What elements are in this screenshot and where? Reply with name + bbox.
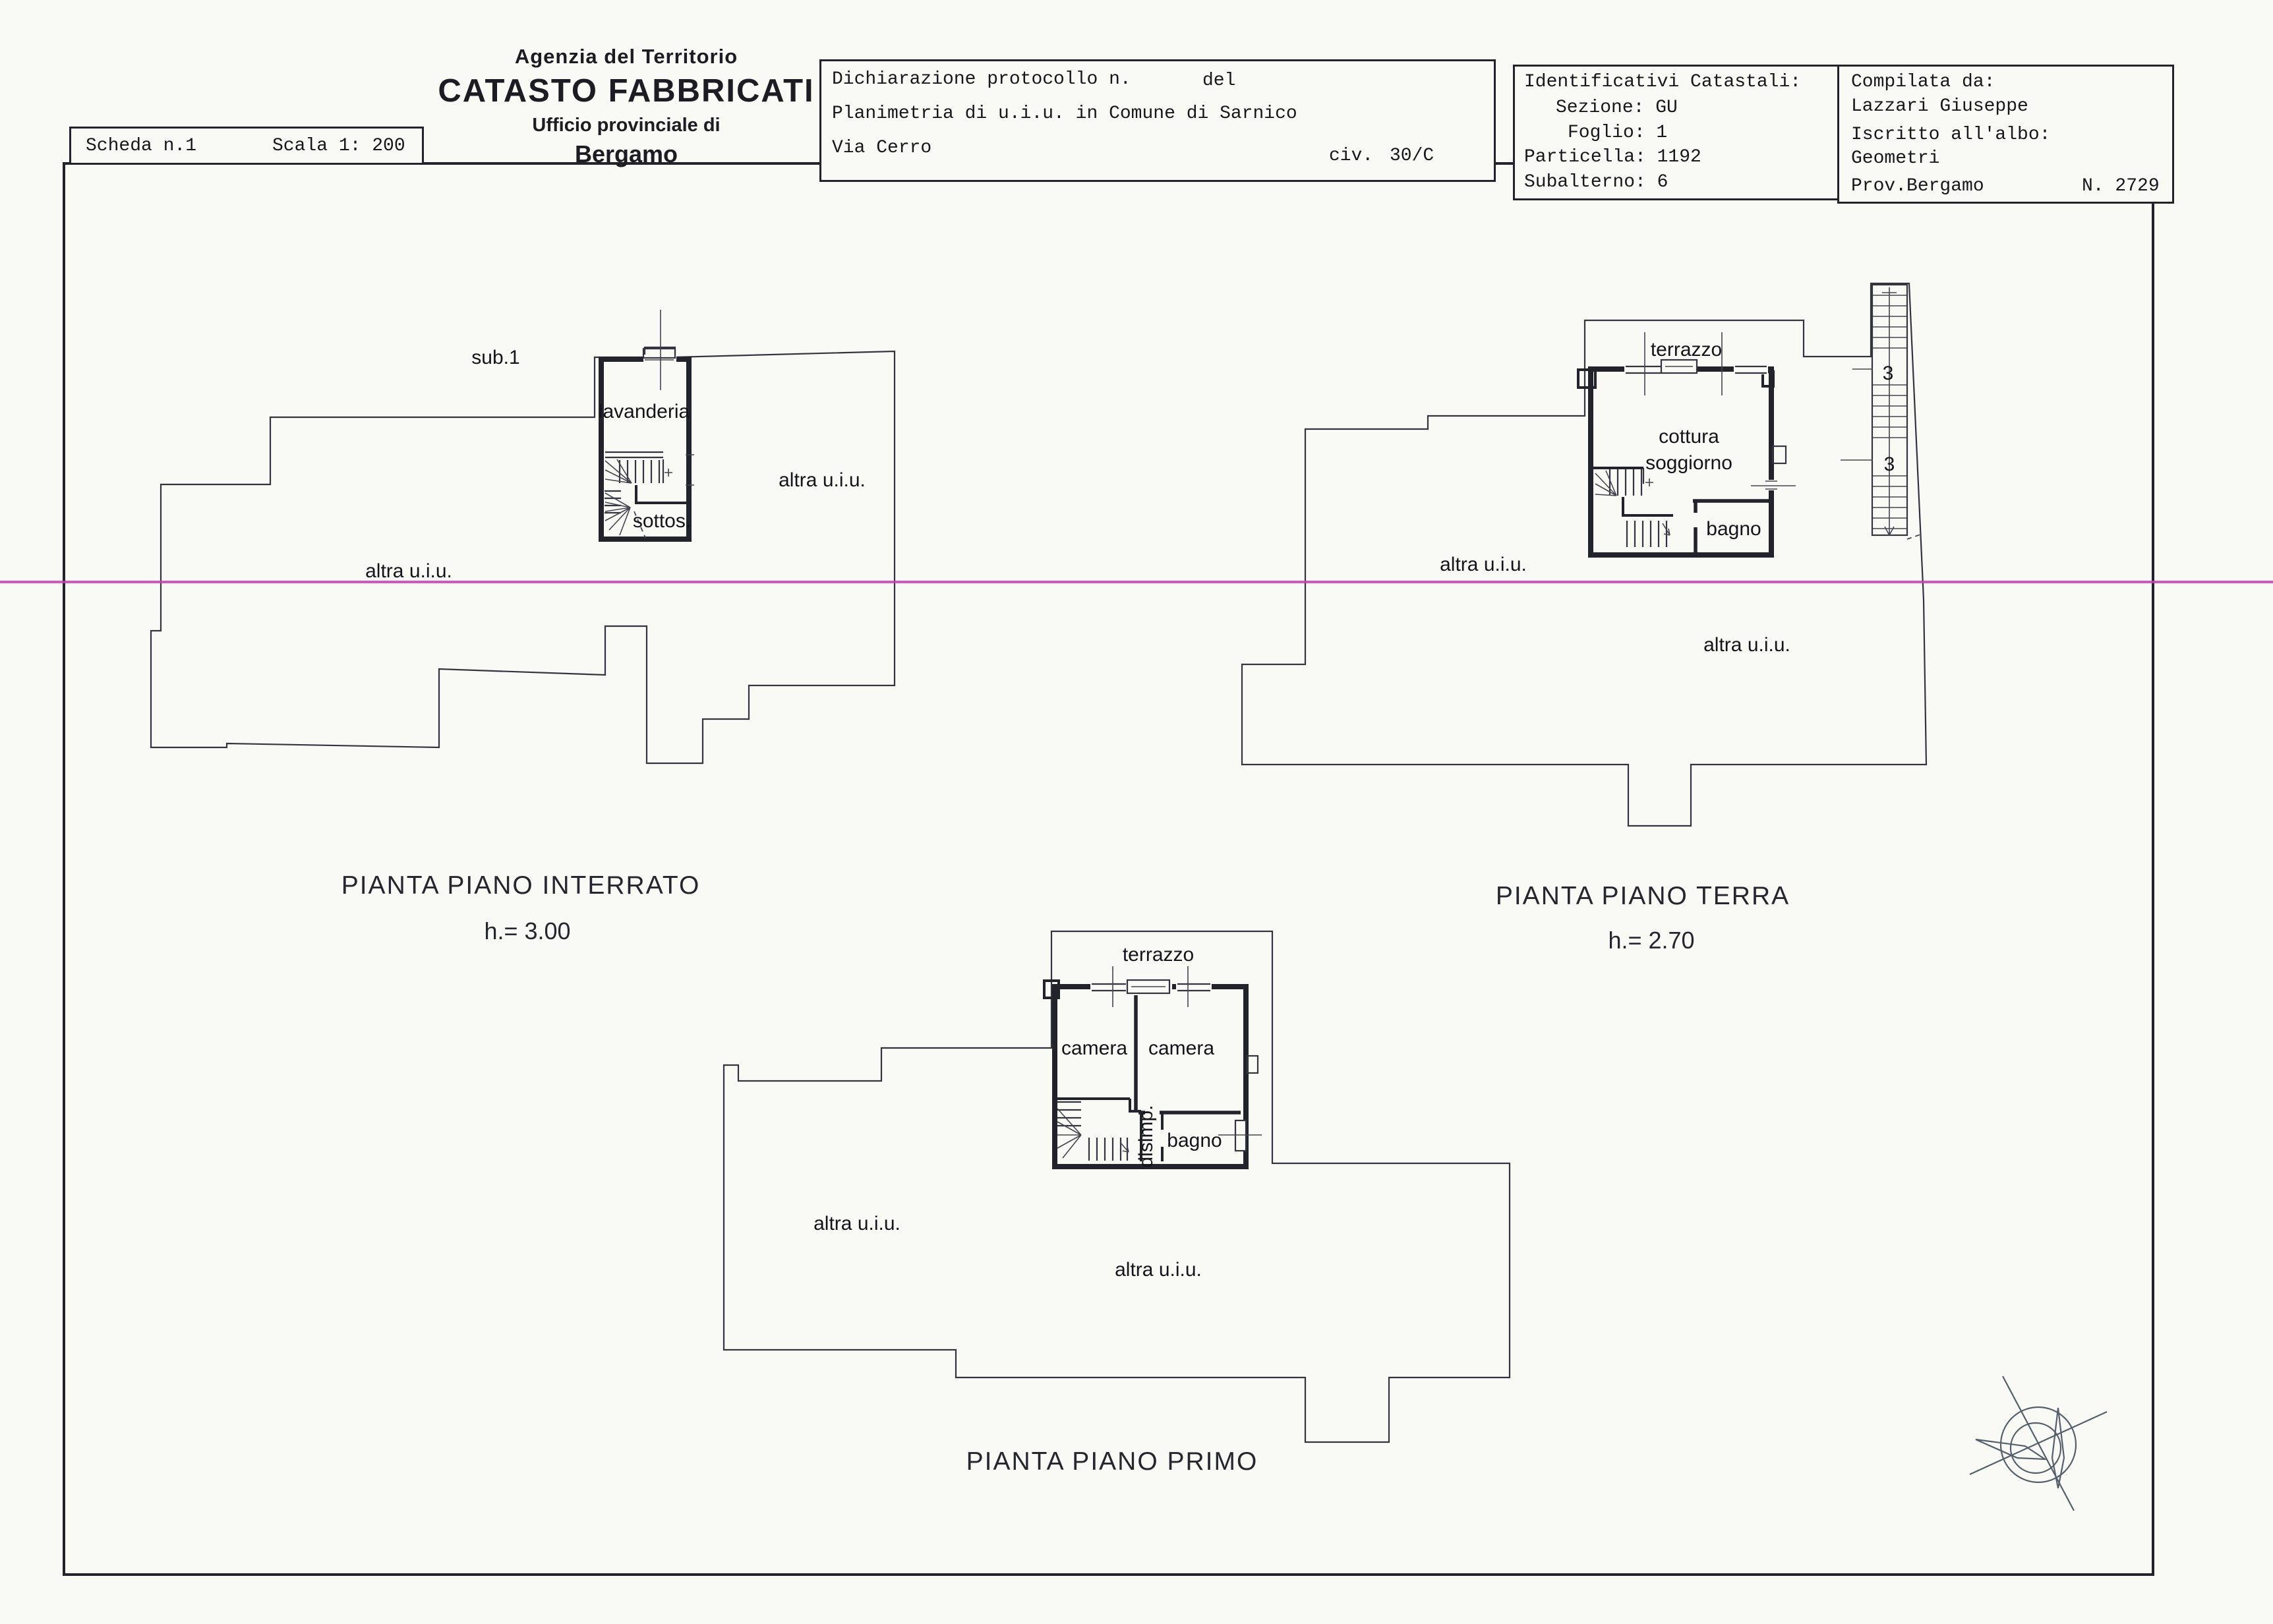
- plan-terra: terrazzo cottura soggiorno bagno 3 3 alt…: [1242, 283, 1926, 826]
- declaration-planimetria: Planimetria di u.i.u. in Comune di Sarni…: [832, 103, 1297, 124]
- cadastral-subalterno: Subalterno: 6: [1524, 172, 1668, 192]
- label-bagno: bagno: [1167, 1130, 1222, 1151]
- wall-opening: [643, 355, 676, 364]
- compiler-box: Compilata da: Lazzari Giuseppe Iscritto …: [1837, 65, 2174, 204]
- sheet-scale: Scala 1: 200: [272, 136, 405, 156]
- label-sub1: sub.1: [471, 347, 519, 368]
- stair-landing-wall: [1623, 497, 1673, 515]
- declaration-street: Via Cerro: [832, 138, 931, 158]
- agency-header: Agenzia del Territorio CATASTO FABBRICAT…: [422, 45, 831, 168]
- label-disimp: disimp.: [1135, 1105, 1157, 1167]
- agency-name: Agenzia del Territorio: [422, 45, 831, 69]
- cadastral-particella: Particella: 1192: [1524, 147, 1701, 167]
- label-soggiorno: soggiorno: [1645, 452, 1732, 474]
- label-altra-uiu: altra u.i.u.: [1440, 554, 1527, 575]
- label-terrazzo: terrazzo: [1651, 339, 1722, 361]
- stair-mark: [1645, 478, 1653, 486]
- cadastral-sezione: Sezione: GU: [1556, 98, 1678, 118]
- label-bagno: bagno: [1706, 518, 1761, 540]
- interior-wall: [605, 452, 663, 457]
- compiler-number: N. 2729: [2082, 176, 2160, 196]
- cadastral-title: Identificativi Catastali:: [1524, 72, 1801, 92]
- declaration-del-label: del: [1202, 71, 1235, 91]
- window-sill: [1247, 1056, 1258, 1073]
- scanner-artifact-line: [0, 581, 2273, 583]
- wall-opening: [1238, 1120, 1246, 1151]
- stair-mark: [664, 469, 672, 477]
- window-sill: [1773, 446, 1786, 463]
- stair-direction-line: [1882, 287, 1897, 535]
- stair-fan-lower: [605, 493, 630, 535]
- primo-title: PIANTA PIANO PRIMO: [881, 1447, 1343, 1476]
- compiler-name: Lazzari Giuseppe: [1851, 96, 2028, 117]
- office-label: Ufficio provinciale di: [422, 115, 831, 136]
- interrato-title: PIANTA PIANO INTERRATO: [290, 871, 752, 900]
- landing-ticks: [1841, 369, 1873, 460]
- declaration-box: Dichiarazione protocollo n. del Planimet…: [819, 59, 1496, 182]
- compiler-title: Compilata da:: [1851, 72, 1995, 92]
- interrato-outline: [151, 347, 895, 763]
- stair-fan: [1595, 471, 1616, 496]
- compiler-albo-value: Geometri: [1851, 148, 1939, 169]
- label-altra-uiu: altra u.i.u.: [779, 469, 866, 491]
- stair-lower-treads: [1089, 1138, 1127, 1161]
- label-camera: camera: [1061, 1037, 1127, 1059]
- stair-lower-treads: [1627, 521, 1667, 547]
- cadastral-foglio: Foglio: 1: [1568, 123, 1667, 143]
- sheet-number: Scheda n.1: [86, 136, 196, 156]
- label-lavanderia: lavanderia: [599, 401, 690, 422]
- stair-fan: [1057, 1109, 1081, 1158]
- north-compass-icon: [1970, 1376, 2107, 1511]
- compiler-prov: Prov.Bergamo: [1851, 176, 1984, 196]
- interrato-height: h.= 3.00: [297, 917, 758, 945]
- stair-landing-wall: [636, 485, 686, 503]
- label-altra-uiu: altra u.i.u.: [1703, 634, 1790, 656]
- label-altra-uiu: altra u.i.u.: [365, 560, 452, 582]
- label-altra-uiu: altra u.i.u.: [1115, 1259, 1202, 1281]
- label-level3: 3: [1884, 453, 1895, 475]
- primo-outline: [724, 931, 1510, 1442]
- floor-plans-drawing: sub.1 lavanderia sottos. altra u.i.u. al…: [0, 0, 2273, 1624]
- compiler-albo-label: Iscritto all'albo:: [1851, 125, 2050, 145]
- label-level3: 3: [1883, 362, 1894, 384]
- civic-label: civ.: [1329, 146, 1373, 166]
- label-altra-uiu: altra u.i.u.: [813, 1213, 900, 1234]
- declaration-protocol-label: Dichiarazione protocollo n.: [832, 69, 1131, 90]
- label-terrazzo: terrazzo: [1123, 944, 1194, 966]
- plan-primo: terrazzo camera camera disimp. bagno alt…: [724, 931, 1510, 1442]
- label-camera: camera: [1148, 1037, 1214, 1059]
- cadastral-box: Identificativi Catastali: Sezione: GU Fo…: [1513, 65, 1841, 200]
- terra-height: h.= 2.70: [1421, 927, 1882, 954]
- office-city: Bergamo: [422, 140, 831, 168]
- label-sottos: sottos.: [633, 510, 691, 532]
- civic-value: 30/C: [1390, 146, 1434, 166]
- plan-interrato: sub.1 lavanderia sottos. altra u.i.u. al…: [151, 310, 895, 763]
- terra-outline: [1242, 283, 1926, 826]
- cadastral-plan-sheet: Agenzia del Territorio CATASTO FABBRICAT…: [0, 0, 2273, 1624]
- document-title: CATASTO FABBRICATI: [422, 72, 831, 109]
- sheet-box: Scheda n.1 Scala 1: 200: [69, 127, 424, 165]
- label-cottura: cottura: [1659, 426, 1719, 448]
- terra-title: PIANTA PIANO TERRA: [1412, 882, 1874, 911]
